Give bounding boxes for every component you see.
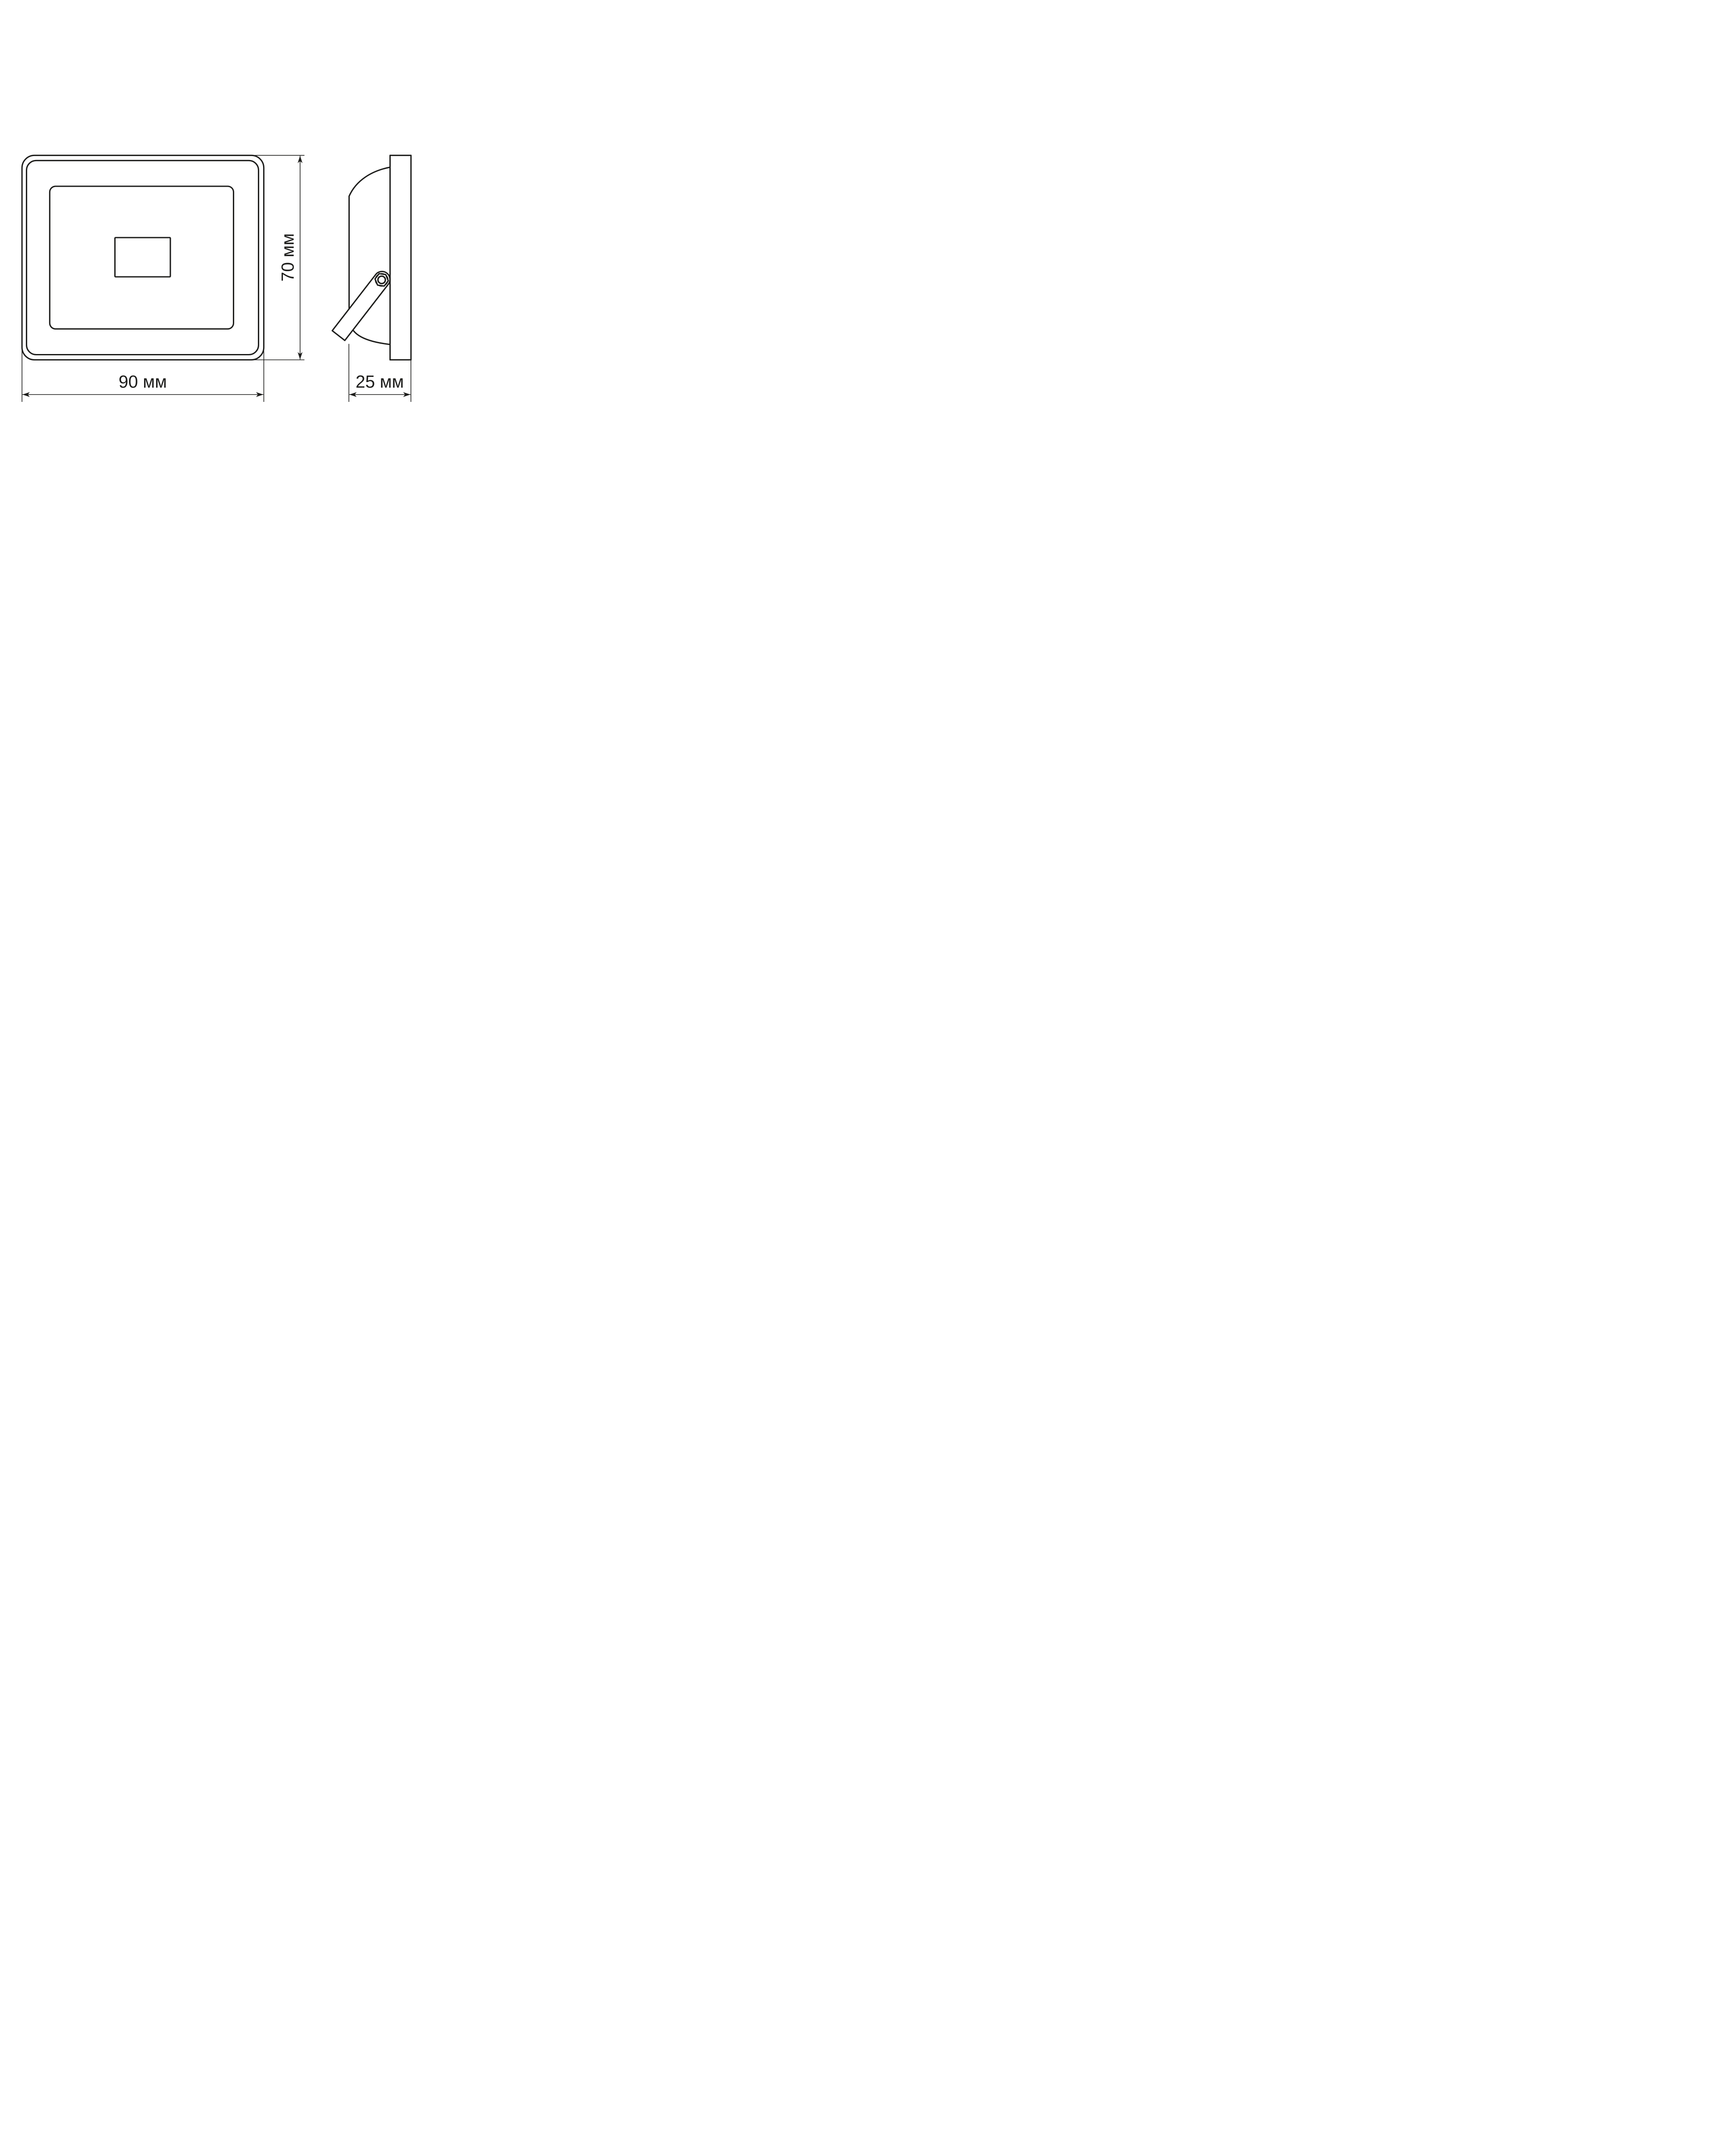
dimension-width: 90 мм [22, 345, 264, 402]
width-dimension-label: 90 мм [119, 372, 167, 392]
dimension-depth: 25 мм [349, 344, 411, 402]
housing-inner-outline [27, 160, 259, 354]
floodlight-dimension-drawing: 90 мм 70 мм 25 мм [0, 0, 431, 575]
dimension-height: 70 мм [251, 155, 304, 360]
front-view [22, 155, 264, 360]
height-dimension-label: 70 мм [278, 233, 298, 282]
back-plate-outline [390, 155, 411, 360]
drawing-sheet: 90 мм 70 мм 25 мм [0, 0, 431, 575]
dimensions: 90 мм 70 мм 25 мм [22, 155, 411, 402]
depth-dimension-label: 25 мм [356, 372, 404, 392]
led-module-window [115, 238, 171, 277]
lens-frame-outline [50, 186, 233, 329]
side-view [332, 155, 411, 360]
